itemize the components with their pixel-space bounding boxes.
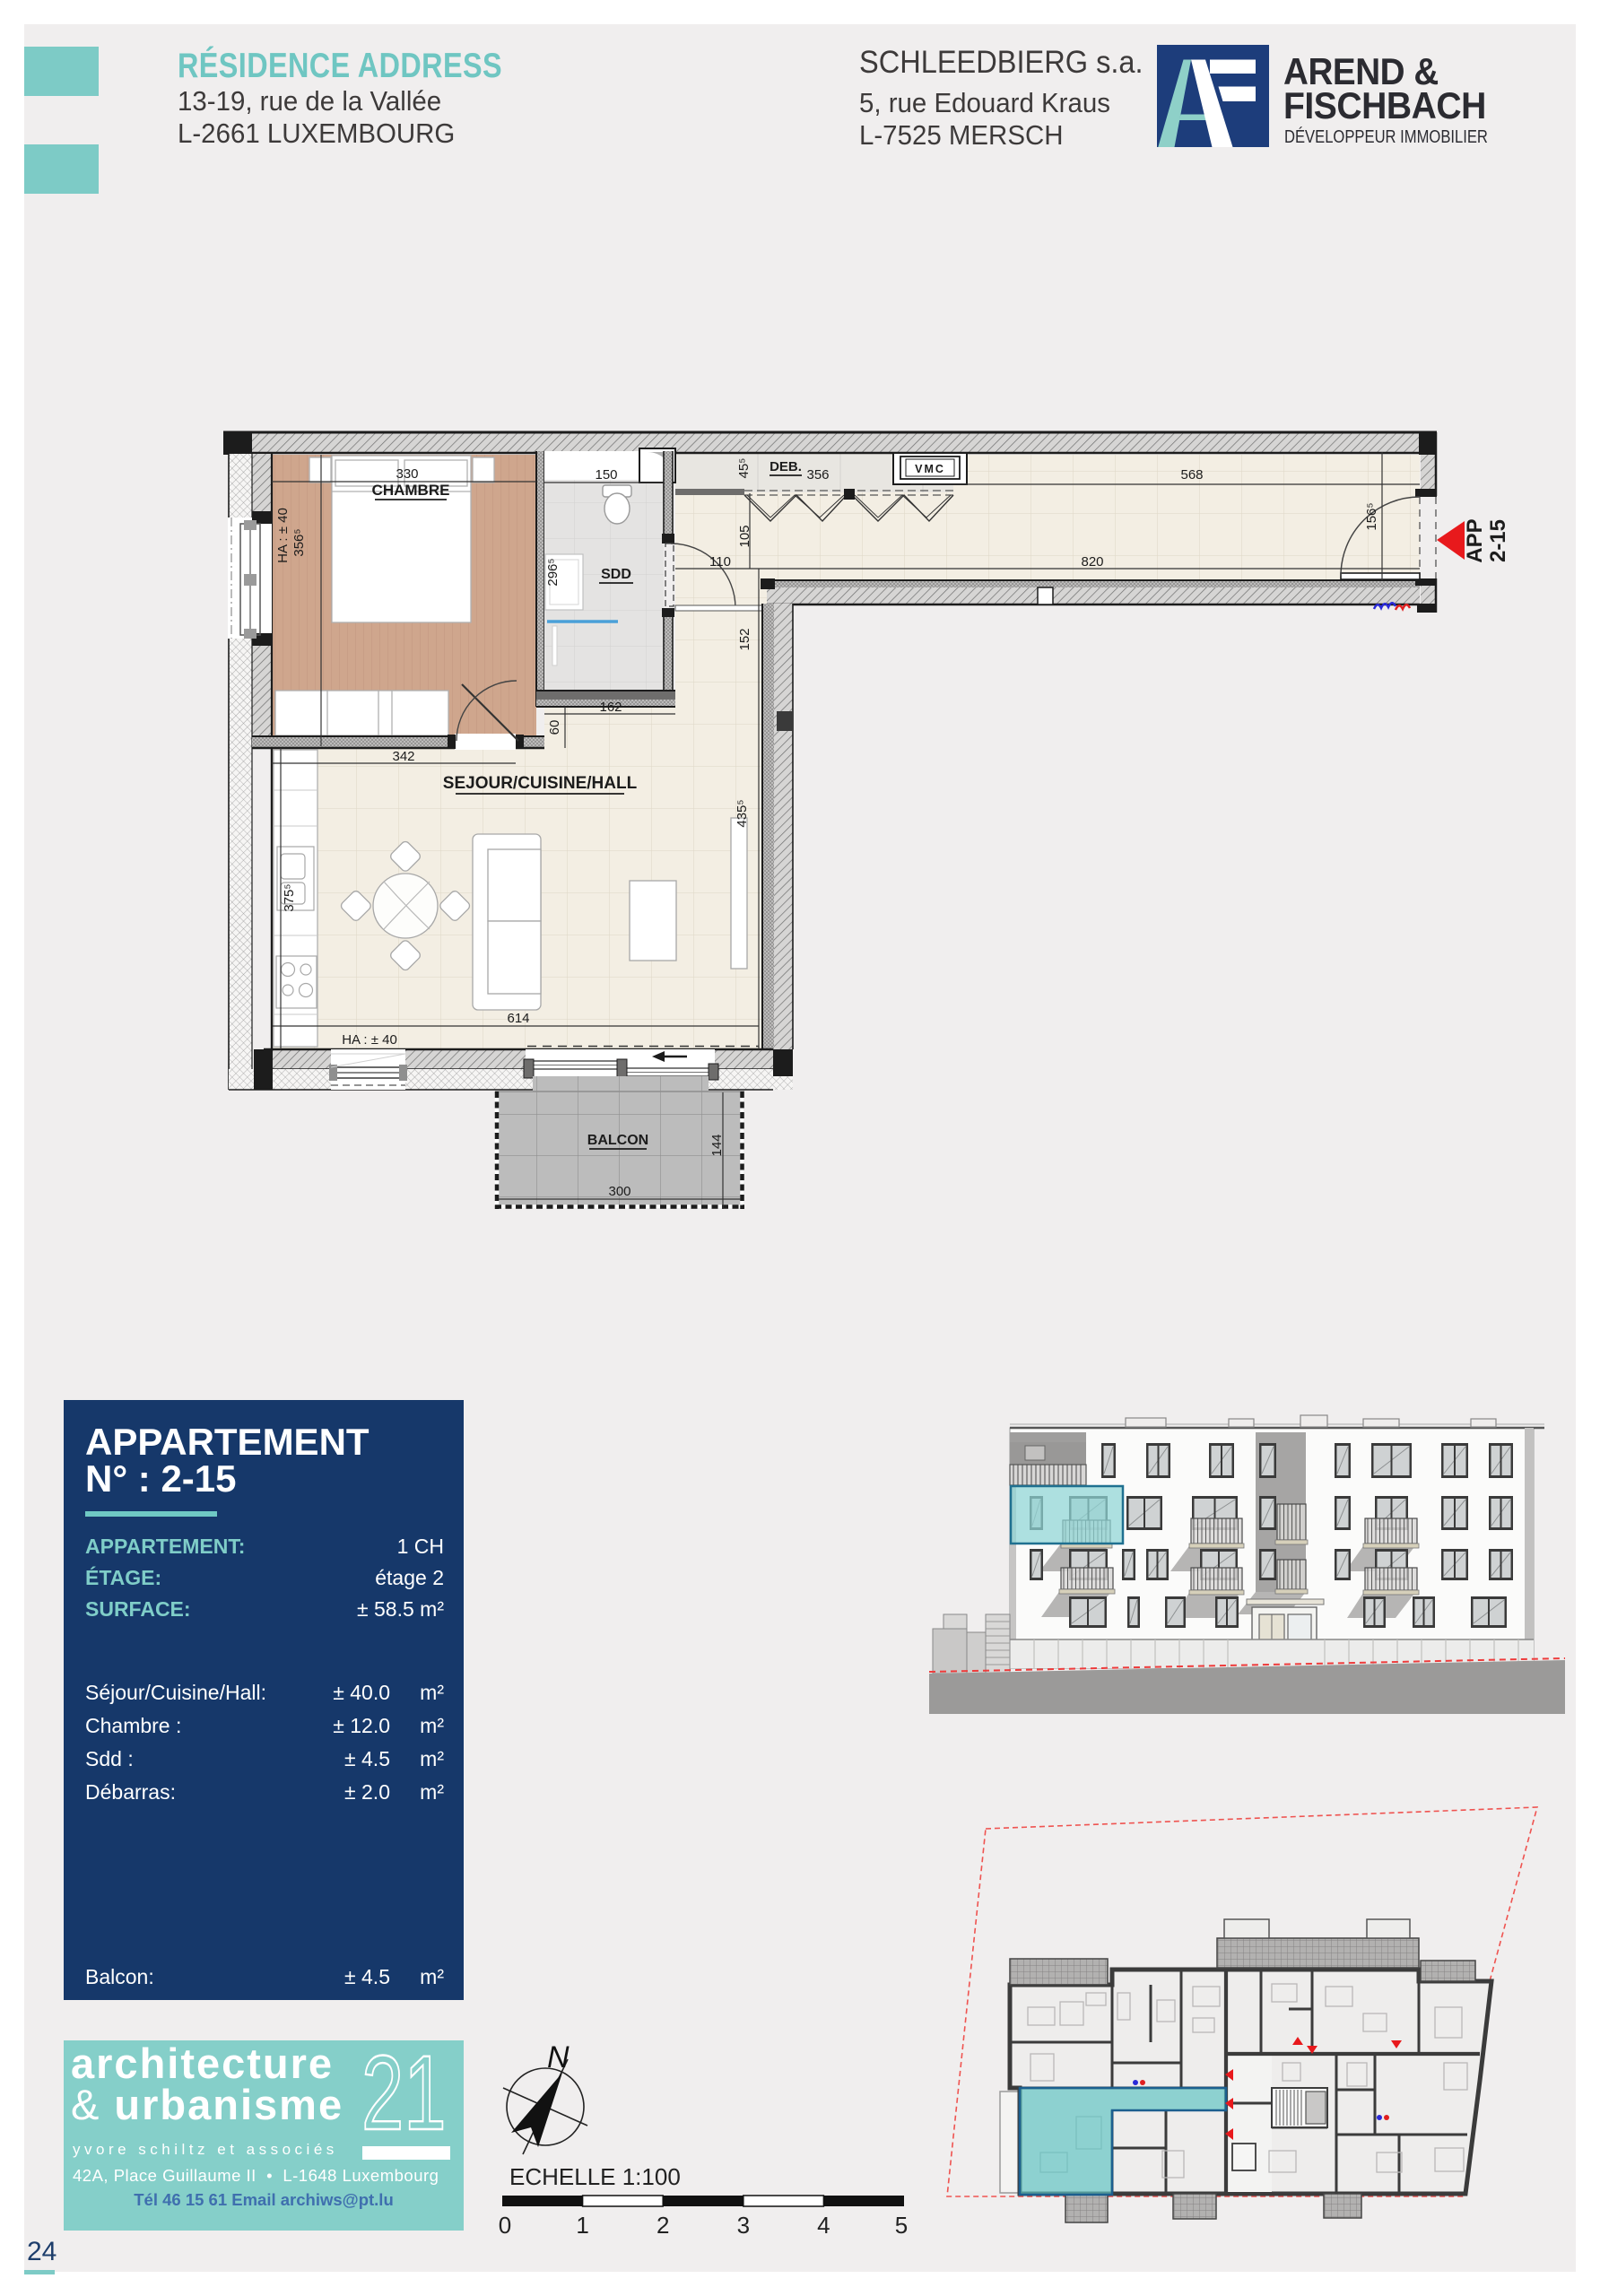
svg-text:820: 820 [1081, 554, 1103, 570]
svg-text:45⁵: 45⁵ [736, 458, 752, 479]
svg-text:152: 152 [737, 628, 752, 650]
svg-text:2-15: 2-15 [1486, 519, 1510, 562]
svg-text:156⁵: 156⁵ [1364, 502, 1379, 530]
svg-text:375⁵: 375⁵ [282, 883, 297, 911]
svg-text:356⁵: 356⁵ [291, 528, 307, 556]
svg-text:330: 330 [396, 466, 418, 482]
svg-text:568: 568 [1180, 467, 1203, 483]
svg-text:HA : ± 40: HA : ± 40 [342, 1032, 397, 1048]
svg-text:435⁵: 435⁵ [735, 799, 750, 827]
svg-text:296⁵: 296⁵ [545, 558, 561, 586]
svg-text:VMC: VMC [915, 463, 945, 475]
svg-text:300: 300 [608, 1184, 630, 1199]
svg-text:1: 1 [576, 2212, 588, 2239]
svg-text:4: 4 [817, 2212, 830, 2239]
svg-text:APP: APP [1463, 518, 1487, 562]
svg-text:614: 614 [507, 1011, 529, 1026]
svg-text:CHAMBRE: CHAMBRE [372, 482, 450, 499]
svg-text:BALCON: BALCON [587, 1133, 648, 1148]
svg-text:105: 105 [737, 525, 752, 547]
svg-text:N: N [547, 2040, 570, 2074]
svg-text:110: 110 [709, 554, 731, 570]
svg-text:60: 60 [547, 720, 562, 735]
svg-text:150: 150 [595, 467, 617, 483]
svg-text:356: 356 [806, 467, 829, 483]
svg-text:5: 5 [895, 2212, 908, 2239]
svg-text:162: 162 [599, 700, 622, 715]
svg-text:SDD: SDD [601, 567, 631, 582]
svg-text:2: 2 [657, 2212, 669, 2239]
svg-text:DEB.: DEB. [770, 459, 802, 474]
svg-text:144: 144 [709, 1134, 725, 1156]
svg-text:HA : ± 40: HA : ± 40 [275, 508, 291, 563]
svg-text:3: 3 [737, 2212, 750, 2239]
svg-text:0: 0 [499, 2212, 511, 2239]
svg-text:342: 342 [392, 749, 414, 764]
svg-text:ECHELLE 1:100: ECHELLE 1:100 [509, 2163, 681, 2190]
svg-text:SEJOUR/CUISINE/HALL: SEJOUR/CUISINE/HALL [443, 774, 638, 793]
